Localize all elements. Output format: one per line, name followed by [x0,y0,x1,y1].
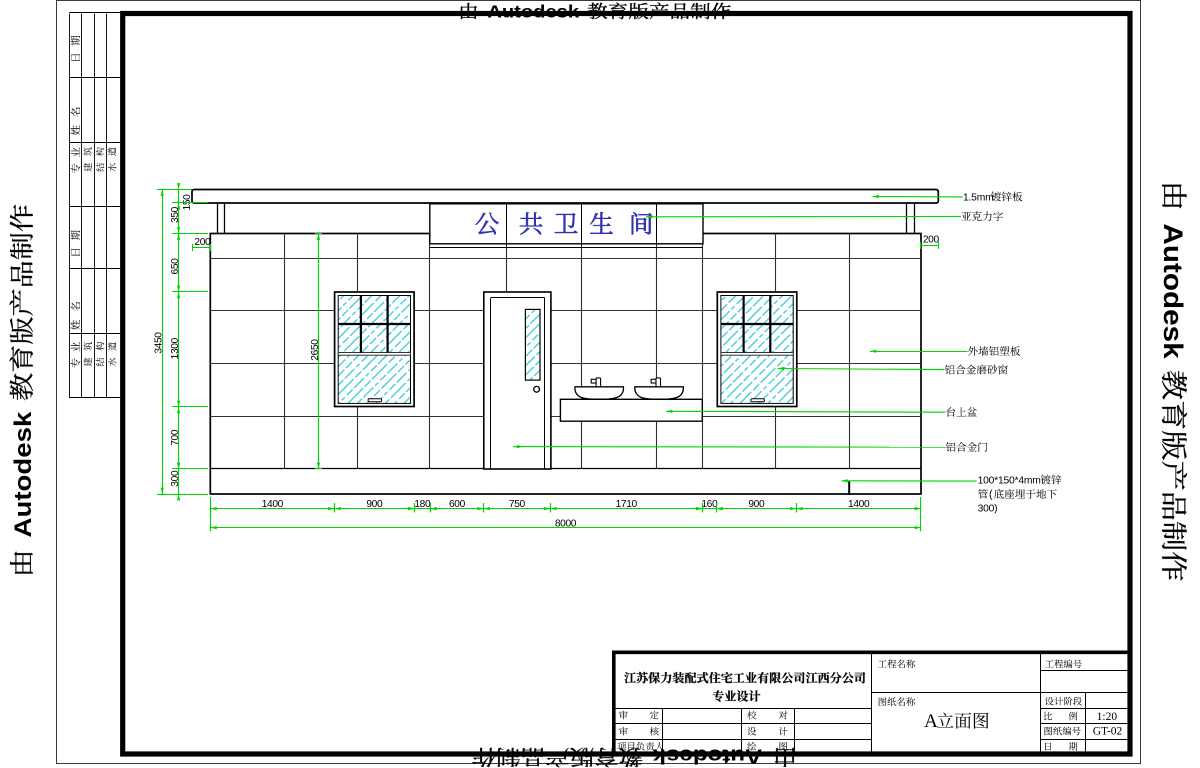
svg-text:350: 350 [170,206,181,223]
svg-text:600: 600 [449,499,466,510]
svg-text:300): 300) [978,504,998,515]
svg-text:GT-02: GT-02 [1093,726,1123,738]
svg-text:Autodesk: Autodesk [8,411,36,537]
svg-text:8000: 8000 [555,518,577,529]
svg-text:1710: 1710 [616,499,638,510]
svg-text:900: 900 [366,499,383,510]
svg-text:1400: 1400 [848,499,870,510]
svg-text:100*150*4mm: 100*150*4mm [978,475,1041,486]
svg-text:200: 200 [923,235,940,246]
svg-text:Autodesk: Autodesk [652,745,762,768]
svg-text:160: 160 [701,499,718,510]
svg-text:3450: 3450 [154,332,165,354]
svg-text:1300: 1300 [170,337,181,359]
svg-text:200: 200 [194,237,211,248]
svg-text:180: 180 [414,499,431,510]
svg-text:900: 900 [748,499,765,510]
svg-text:(: ( [989,489,993,501]
svg-text:300: 300 [170,470,181,487]
svg-text:700: 700 [170,429,181,446]
svg-text:1:20: 1:20 [1097,711,1118,723]
svg-text:Autodesk: Autodesk [487,2,579,21]
svg-text:1400: 1400 [262,499,284,510]
svg-text:A: A [924,711,938,732]
svg-text:1.5mm: 1.5mm [963,192,993,203]
svg-text:Autodesk: Autodesk [1159,223,1188,359]
svg-text:650: 650 [170,258,181,275]
svg-text:2650: 2650 [310,339,321,361]
svg-text:750: 750 [509,499,526,510]
